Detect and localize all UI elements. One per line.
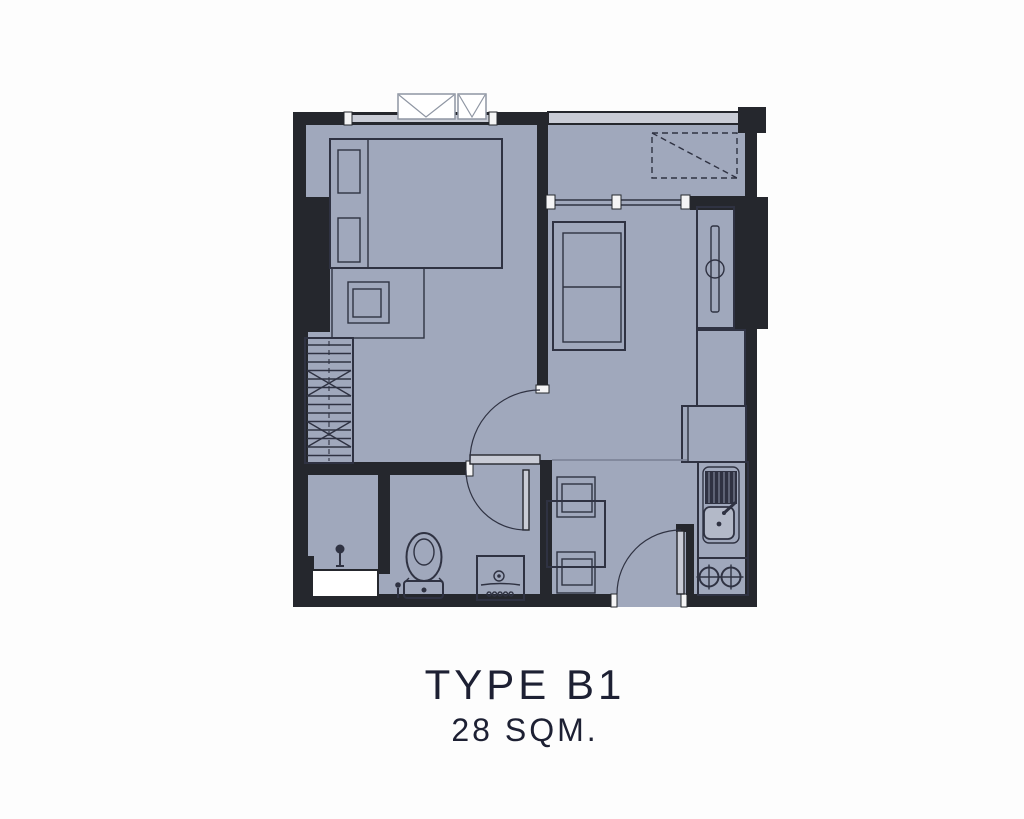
balcony-railing [548, 112, 745, 124]
entrance-door-post-right [681, 594, 687, 607]
ac-ledge-box-small [458, 94, 486, 119]
balcony-corner-column [738, 107, 766, 133]
entrance-door-post-left [611, 594, 617, 607]
entrance-side-wall [686, 532, 694, 595]
unit-type-label: TYPE B1 [425, 661, 626, 709]
sink-drainer-icon [705, 471, 737, 504]
sliding-door-post-middle [612, 195, 621, 209]
unit-area-label: 28 SQM. [451, 712, 598, 749]
left-wall-upper [293, 112, 306, 202]
floor-plan-page: TYPE B1 28 SQM. [0, 0, 1024, 819]
shower-window [312, 570, 378, 597]
right-exterior-column [734, 197, 768, 329]
bedroom-door-post [536, 385, 549, 393]
left-column [293, 197, 330, 332]
shower-corner-wall [293, 556, 314, 598]
window-post-left [344, 112, 352, 125]
window-post-right [489, 112, 497, 125]
bedroom-living-wall [537, 112, 548, 392]
sliding-door-post-right [681, 195, 690, 209]
entrance-door-leaf [677, 531, 684, 594]
shower-partition-wall [378, 462, 390, 574]
ac-ledge-box-large [398, 94, 455, 119]
faucet-base [722, 511, 726, 515]
sink-drain [717, 522, 722, 527]
bathroom-door-leaf [523, 470, 529, 530]
ac-ledge-boxes [398, 94, 486, 119]
sliding-door-post-left [546, 195, 555, 209]
entrance-opening [617, 594, 681, 607]
bedroom-door-leaf [470, 455, 540, 464]
